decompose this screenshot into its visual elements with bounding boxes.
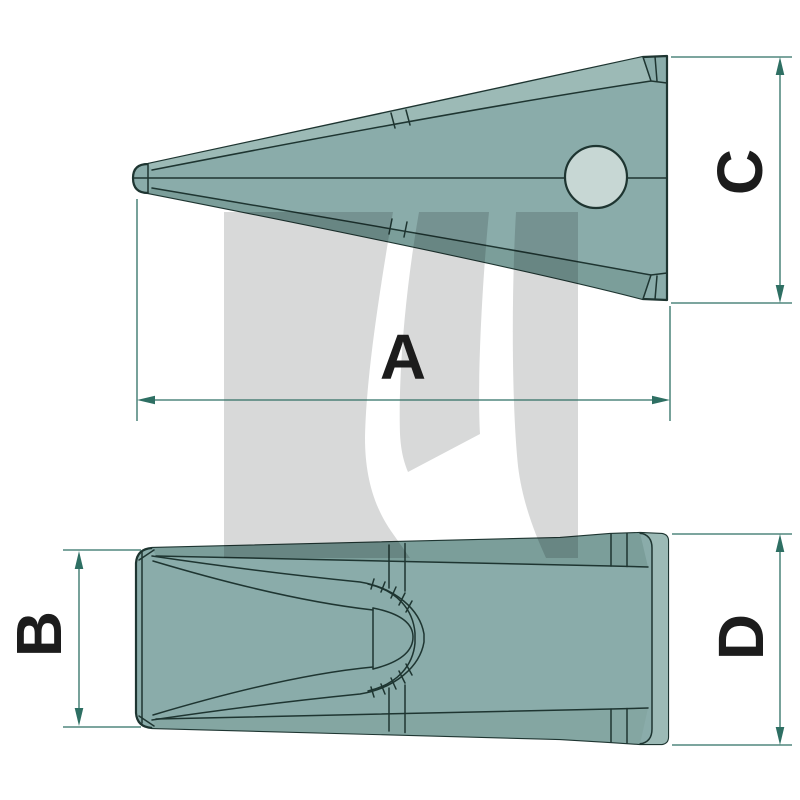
dim-d-arrow-top: [776, 534, 785, 552]
side-view: [133, 56, 667, 300]
dim-a-arrow-right: [652, 396, 670, 405]
dim-c-label: C: [704, 149, 776, 195]
dimension-b: B: [3, 550, 141, 727]
dim-a-label: A: [380, 321, 426, 393]
plan-view: [136, 533, 668, 744]
dim-d-label: D: [705, 614, 777, 660]
dim-b-arrow-top: [75, 551, 84, 569]
watermark-right-strip: [513, 212, 578, 558]
dim-c-arrow-bottom: [776, 285, 785, 303]
dim-b-arrow-bottom: [75, 708, 84, 726]
drawing-canvas: A C B D: [0, 0, 800, 800]
dim-d-arrow-bottom: [776, 727, 785, 745]
dim-c-arrow-top: [776, 57, 785, 75]
dimension-c: C: [671, 57, 792, 303]
dimension-d: D: [672, 534, 792, 745]
bucket-tooth-two-view-drawing: A C B D: [0, 0, 800, 800]
dim-b-label: B: [3, 611, 75, 657]
dim-a-arrow-left: [137, 396, 155, 405]
pin-hole: [565, 146, 627, 208]
